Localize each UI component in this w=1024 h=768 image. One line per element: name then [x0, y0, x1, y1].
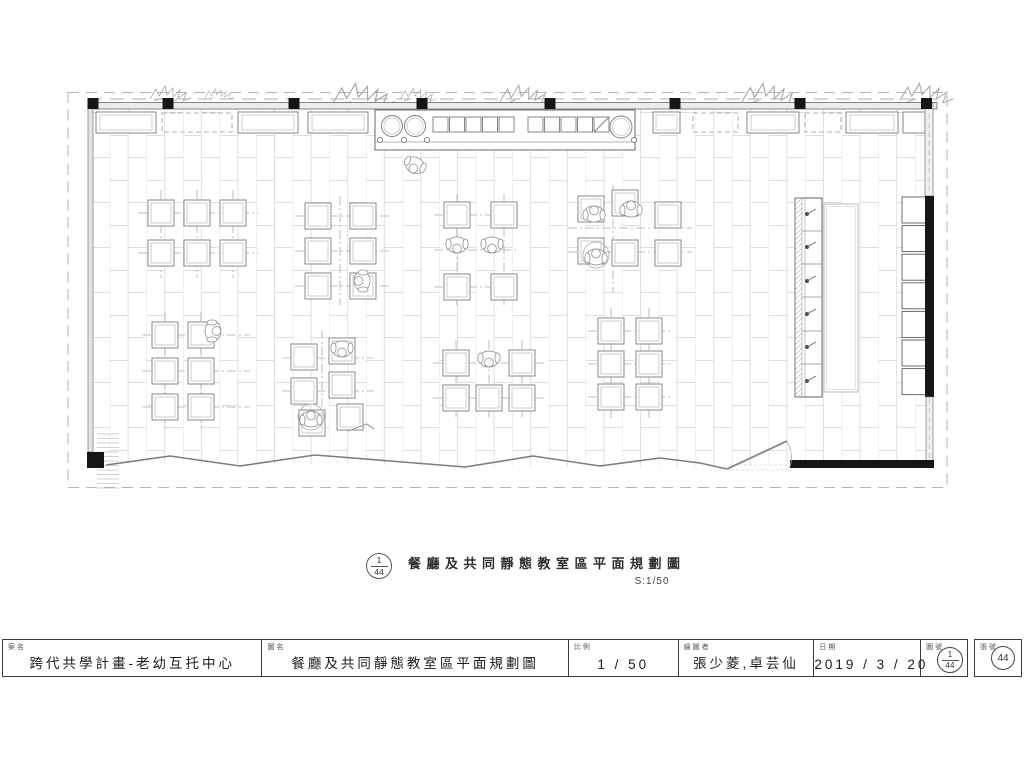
titleblock-sheetno-cell: 圖號 1 44	[921, 640, 967, 676]
drafter-value: 張少菱,卓芸仙	[679, 652, 814, 672]
sheet-no-bottom: 44	[942, 661, 959, 670]
drawing-scale-note: S:1/50	[408, 576, 686, 587]
titleblock-project-cell: 案名 跨代共學計畫-老幼互托中心	[3, 640, 262, 676]
drawing-name-label: 圖名	[267, 642, 285, 652]
page-no-bubble: 44	[991, 646, 1015, 670]
drawing-caption: 1 44 餐廳及共同靜態教室區平面規劃圖 S:1/50	[366, 553, 686, 587]
titleblock-drafter-cell: 繪圖者 張少菱,卓芸仙	[679, 640, 815, 676]
storage-cabinet	[795, 198, 822, 397]
drawing-ref-bubble: 1 44	[366, 553, 392, 579]
scale-value: 1 / 50	[569, 657, 678, 672]
date-value: 2019 / 3 / 20	[814, 657, 920, 672]
titleblock-pageno-cell: 張號 44	[974, 639, 1022, 677]
platform-mat	[824, 204, 858, 392]
title-block: 案名 跨代共學計畫-老幼互托中心 圖名 餐廳及共同靜態教室區平面規劃圖 比例 1…	[2, 639, 968, 677]
date-label: 日期	[819, 642, 837, 652]
wall-shelf-column	[902, 197, 927, 395]
floor-plan	[0, 0, 1024, 540]
buffet-counter	[375, 110, 637, 150]
drawing-sheet: { "caption": { "ref_top": "1", "ref_bott…	[0, 0, 1024, 768]
sheet-no-bubble: 1 44	[937, 647, 963, 673]
drafter-label: 繪圖者	[684, 642, 711, 652]
titleblock-scale-cell: 比例 1 / 50	[569, 640, 679, 676]
ref-number: 1	[371, 556, 388, 567]
right-wall	[925, 103, 934, 461]
top-wall	[88, 99, 937, 109]
scale-label: 比例	[574, 642, 592, 652]
bottom-wall	[790, 460, 934, 468]
titleblock-date-cell: 日期 2019 / 3 / 20	[814, 640, 921, 676]
titleblock-drawing-cell: 圖名 餐廳及共同靜態教室區平面規劃圖	[262, 640, 568, 676]
ref-sheet: 44	[371, 567, 388, 577]
drawing-title: 餐廳及共同靜態教室區平面規劃圖	[408, 553, 686, 572]
drawing-name-value: 餐廳及共同靜態教室區平面規劃圖	[262, 652, 567, 672]
sheet-no-top: 1	[942, 651, 959, 661]
project-label: 案名	[8, 642, 26, 652]
left-wall	[88, 103, 93, 452]
project-value: 跨代共學計畫-老幼互托中心	[3, 652, 261, 672]
